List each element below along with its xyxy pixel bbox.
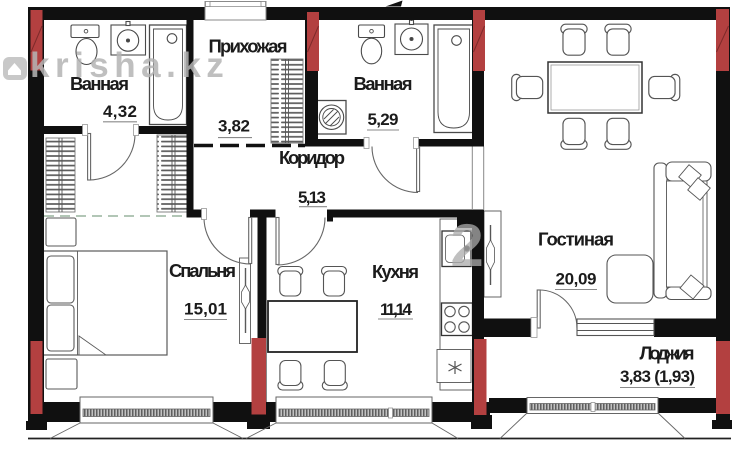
svg-text:11,14: 11,14 (380, 300, 413, 319)
svg-text:Ванная: Ванная (354, 73, 413, 94)
svg-text:5,29: 5,29 (368, 110, 399, 129)
svg-text:Гостиная: Гостиная (538, 229, 614, 250)
svg-text:4,32: 4,32 (103, 102, 137, 121)
svg-text:Спальня: Спальня (169, 260, 236, 281)
svg-text:Лоджия: Лоджия (640, 343, 695, 364)
svg-text:Коридор: Коридор (279, 147, 345, 168)
svg-text:Кухня: Кухня (372, 261, 419, 282)
svg-text:20,09: 20,09 (556, 270, 597, 289)
svg-text:krisha.kz: krisha.kz (30, 46, 229, 85)
svg-text:3,83 (1,93): 3,83 (1,93) (620, 367, 695, 386)
svg-text:3,82: 3,82 (218, 117, 250, 136)
svg-text:5,13: 5,13 (298, 188, 326, 207)
svg-text:2: 2 (450, 212, 483, 279)
svg-text:15,01: 15,01 (184, 300, 227, 319)
